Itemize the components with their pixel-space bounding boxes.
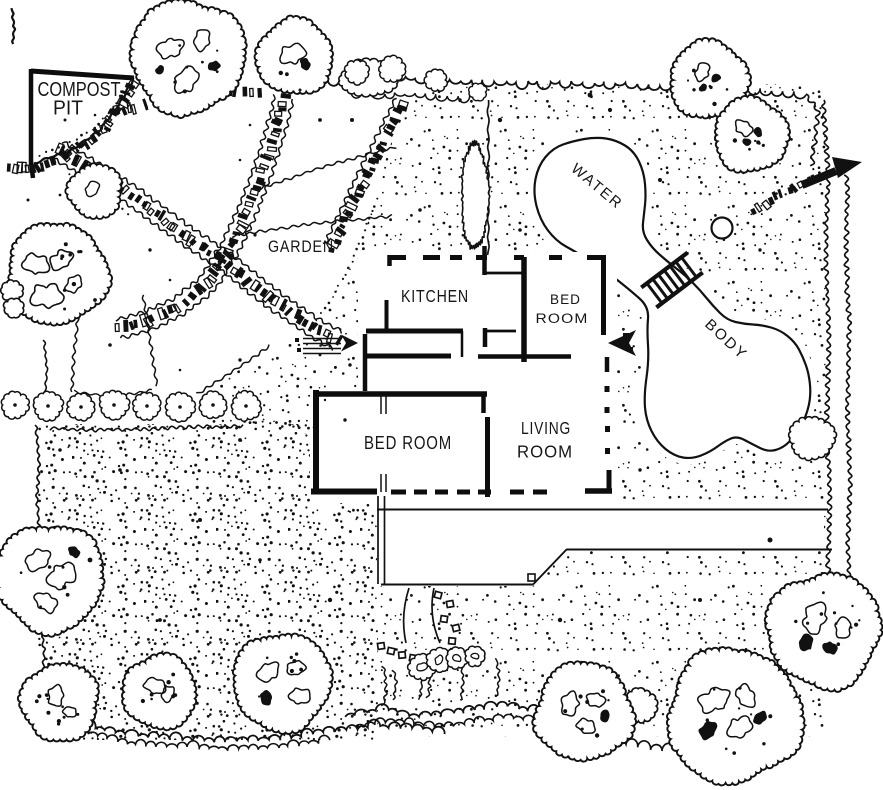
svg-text:LIVING: LIVING bbox=[521, 418, 571, 438]
svg-text:ROOM: ROOM bbox=[536, 311, 589, 326]
svg-text:PIT: PIT bbox=[53, 98, 83, 120]
svg-text:BED: BED bbox=[550, 292, 581, 307]
svg-text:ROOM: ROOM bbox=[517, 442, 573, 462]
svg-text:KITCHEN: KITCHEN bbox=[401, 286, 469, 306]
svg-text:GARDEN: GARDEN bbox=[268, 237, 334, 256]
svg-text:BED ROOM: BED ROOM bbox=[364, 433, 452, 453]
